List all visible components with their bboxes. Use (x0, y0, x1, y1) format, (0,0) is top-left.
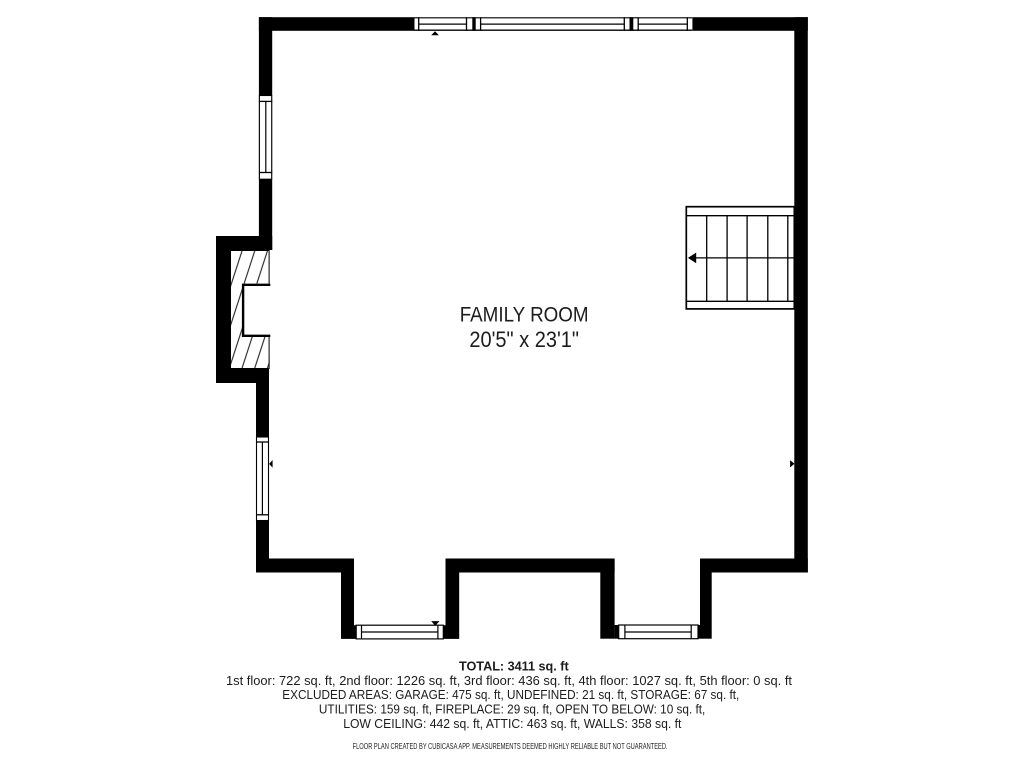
svg-text:EXCLUDED AREAS: GARAGE: 475 sq: EXCLUDED AREAS: GARAGE: 475 sq. ft, UNDE… (282, 688, 739, 702)
svg-text:TOTAL: 3411 sq. ft: TOTAL: 3411 sq. ft (459, 659, 569, 674)
svg-text:1st floor: 722 sq. ft, 2nd flo: 1st floor: 722 sq. ft, 2nd floor: 1226 s… (226, 674, 793, 688)
svg-text:20'5" x 23'1": 20'5" x 23'1" (469, 327, 579, 352)
svg-text:UTILITIES: 159 sq. ft, FIREPLA: UTILITIES: 159 sq. ft, FIREPLACE: 29 sq.… (319, 703, 705, 717)
svg-text:FAMILY ROOM: FAMILY ROOM (460, 303, 589, 326)
svg-text:FLOOR PLAN CREATED BY CUBICASA: FLOOR PLAN CREATED BY CUBICASA APP. MEAS… (353, 742, 668, 751)
svg-text:LOW CEILING: 442 sq. ft, ATTIC: LOW CEILING: 442 sq. ft, ATTIC: 463 sq. … (343, 717, 682, 731)
